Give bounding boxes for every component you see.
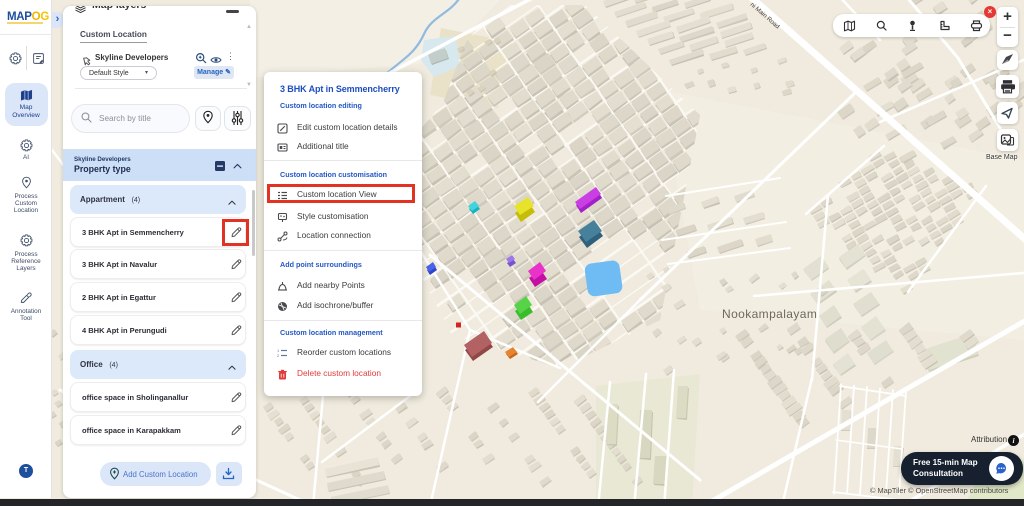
svg-text:Nookampalayam: Nookampalayam [722, 307, 817, 321]
svg-text:2: 2 [277, 353, 280, 358]
